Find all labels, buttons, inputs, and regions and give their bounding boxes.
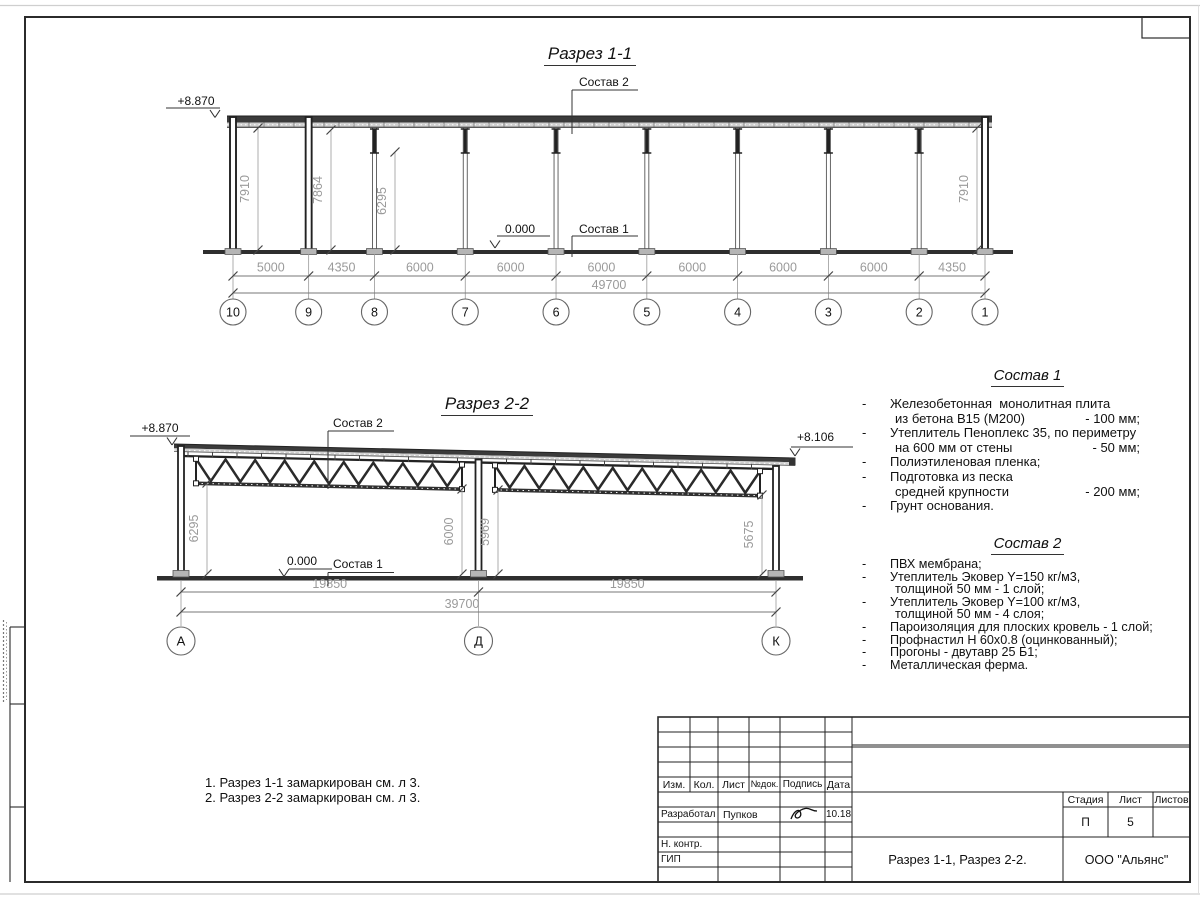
composition-line: толщиной 50 мм - 1 слой; — [860, 583, 1160, 596]
svg-text:6000: 6000 — [442, 518, 456, 546]
composition-line: средней крупности- 200 мм; — [860, 485, 1142, 500]
svg-text:7: 7 — [462, 306, 469, 320]
composition-line: -ПВХ мембрана; — [860, 558, 1160, 571]
svg-text:7910: 7910 — [957, 175, 971, 203]
section1-title: Разрез 1-1 — [505, 44, 675, 64]
section2-zero-mark: 0.000 — [287, 554, 317, 568]
svg-text:4: 4 — [734, 306, 741, 320]
section1-dimensions: 5000435060006000600060006000600043504970… — [229, 124, 990, 300]
tb-col-kol: Кол. — [690, 777, 718, 792]
composition-line: -Грунт основания. — [860, 499, 1142, 514]
composition-line: -Металлическая ферма. — [860, 659, 1160, 672]
section2-callout-floor: Состав 1 — [333, 557, 383, 571]
svg-text:3: 3 — [825, 306, 832, 320]
composition-line: -Полиэтиленовая пленка; — [860, 455, 1142, 470]
tb-company: ООО "Альянс" — [1063, 837, 1190, 882]
svg-text:7910: 7910 — [238, 175, 252, 203]
svg-text:4350: 4350 — [328, 261, 356, 275]
tb-developer-date: 10.18 — [825, 807, 852, 822]
composition1-title: Состав 1 — [950, 367, 1105, 384]
svg-text:10: 10 — [226, 306, 240, 320]
svg-text:39700: 39700 — [445, 597, 480, 611]
section2-callout-roof: Состав 2 — [333, 416, 383, 430]
section1-elevation-mark: +8.870 — [170, 94, 222, 108]
svg-text:19850: 19850 — [610, 577, 645, 591]
composition-line: из бетона В15 (М200)- 100 мм; — [860, 412, 1142, 427]
section2-axis-bubbles: АДК — [167, 627, 790, 655]
svg-text:Д: Д — [474, 634, 483, 649]
section2-title: Разрез 2-2 — [402, 394, 572, 414]
composition-line: -Подготовка из песка — [860, 470, 1142, 485]
left-margin-blocks — [4, 620, 26, 882]
tb-col-podpis: Подпись — [780, 777, 825, 792]
svg-text:6: 6 — [553, 306, 560, 320]
svg-text:1: 1 — [982, 306, 989, 320]
tb-sheet-value: 5 — [1108, 807, 1153, 837]
composition2-list: -ПВХ мембрана;-Утеплитель Эковер Y=150 к… — [860, 558, 1160, 671]
tb-col-data: Дата — [825, 777, 852, 792]
svg-text:49700: 49700 — [592, 278, 627, 292]
section2-linework — [157, 444, 803, 581]
svg-text:6000: 6000 — [860, 261, 888, 275]
notes: 1. Разрез 1-1 замаркирован см. л 3.2. Ра… — [205, 776, 420, 806]
tb-sheet-label: Лист — [1108, 792, 1153, 807]
section1-zero-mark: 0.000 — [505, 222, 535, 236]
composition-line: -Пароизоляция для плоских кровель - 1 сл… — [860, 621, 1160, 634]
svg-text:2: 2 — [916, 306, 923, 320]
svg-text:5969: 5969 — [478, 518, 492, 546]
svg-text:6295: 6295 — [375, 187, 389, 215]
composition-line: -Утеплитель Пеноплекс 35, по периметру — [860, 426, 1142, 441]
tb-doc-title: Разрез 1-1, Разрез 2-2. — [852, 837, 1063, 882]
composition2-title: Состав 2 — [950, 535, 1105, 552]
tb-stage-value: П — [1063, 807, 1108, 837]
note-line: 1. Разрез 1-1 замаркирован см. л 3. — [205, 776, 420, 791]
tb-developer-name: Пупков — [720, 807, 783, 822]
note-line: 2. Разрез 2-2 замаркирован см. л 3. — [205, 791, 420, 806]
svg-text:19850: 19850 — [312, 577, 347, 591]
section1-callout-floor: Состав 1 — [579, 222, 629, 236]
svg-text:8: 8 — [371, 306, 378, 320]
composition-line: -Прогоны - двутавр 25 Б1; — [860, 646, 1160, 659]
svg-text:6000: 6000 — [769, 261, 797, 275]
tb-col-list: Лист — [718, 777, 749, 792]
svg-text:4350: 4350 — [938, 261, 966, 275]
developer-signature — [791, 808, 817, 819]
svg-text:6000: 6000 — [406, 261, 434, 275]
svg-text:А: А — [177, 634, 186, 649]
composition-line: -Железобетонная монолитная плита — [860, 397, 1142, 412]
tb-sheets-label: Листов — [1153, 792, 1190, 807]
tb-col-izm: Изм. — [658, 777, 690, 792]
tb-ncontr-label: Н. контр. — [658, 837, 721, 852]
svg-text:К: К — [772, 634, 780, 649]
svg-text:5000: 5000 — [257, 261, 285, 275]
section1-callout-roof: Состав 2 — [579, 75, 629, 89]
tb-gip-label: ГИП — [658, 852, 721, 867]
svg-text:5: 5 — [643, 306, 650, 320]
section2-elevation-right: +8.106 — [797, 430, 834, 444]
svg-text:5675: 5675 — [742, 521, 756, 549]
svg-text:9: 9 — [305, 306, 312, 320]
composition-line: на 600 мм от стены- 50 мм; — [860, 441, 1142, 456]
svg-text:6295: 6295 — [187, 515, 201, 543]
tb-developer-label: Разработал — [658, 807, 721, 822]
tb-col-ndok: №док. — [749, 777, 780, 792]
drawing-sheet: 5000435060006000600060006000600043504970… — [0, 0, 1200, 900]
svg-text:6000: 6000 — [678, 261, 706, 275]
svg-text:7864: 7864 — [311, 176, 325, 204]
section2-elevation-left: +8.870 — [132, 421, 188, 435]
composition1-list: -Железобетонная монолитная плитаиз бетон… — [860, 397, 1142, 514]
svg-text:6000: 6000 — [588, 261, 616, 275]
svg-text:6000: 6000 — [497, 261, 525, 275]
tb-stage-label: Стадия — [1063, 792, 1108, 807]
section1-axis-bubbles: 10987654321 — [220, 299, 998, 325]
